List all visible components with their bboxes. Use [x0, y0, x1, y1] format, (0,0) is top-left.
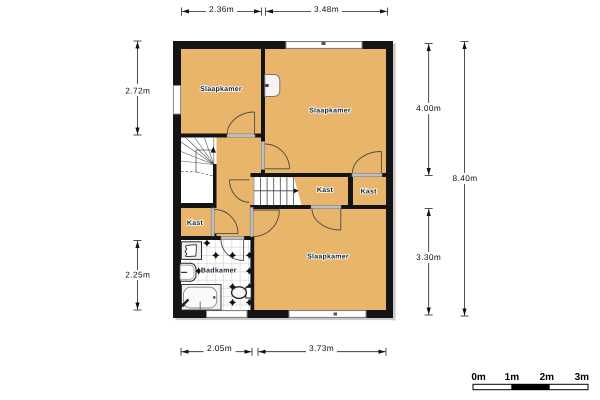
svg-text:Kast: Kast: [361, 188, 378, 195]
svg-text:3m: 3m: [575, 372, 590, 383]
svg-text:Kast: Kast: [317, 187, 334, 194]
svg-text:4.00m: 4.00m: [416, 103, 441, 113]
svg-text:2m: 2m: [540, 372, 555, 383]
svg-text:8.40m: 8.40m: [452, 173, 477, 183]
svg-text:0m: 0m: [471, 372, 486, 383]
svg-text:3.73m: 3.73m: [309, 343, 334, 353]
svg-text:3.48m: 3.48m: [314, 4, 339, 14]
svg-text:2.36m: 2.36m: [209, 4, 234, 14]
svg-text:1m: 1m: [505, 372, 520, 383]
svg-text:2.72m: 2.72m: [125, 86, 150, 96]
svg-text:3.30m: 3.30m: [416, 252, 441, 262]
svg-text:2.05m: 2.05m: [207, 343, 232, 353]
svg-text:Slaapkamer: Slaapkamer: [200, 85, 242, 93]
svg-text:Slaapkamer: Slaapkamer: [307, 252, 349, 260]
svg-text:Kast: Kast: [187, 220, 204, 227]
svg-text:Badkamer: Badkamer: [201, 267, 237, 275]
svg-text:Slaapkamer: Slaapkamer: [309, 107, 351, 115]
svg-text:2.25m: 2.25m: [125, 270, 150, 280]
